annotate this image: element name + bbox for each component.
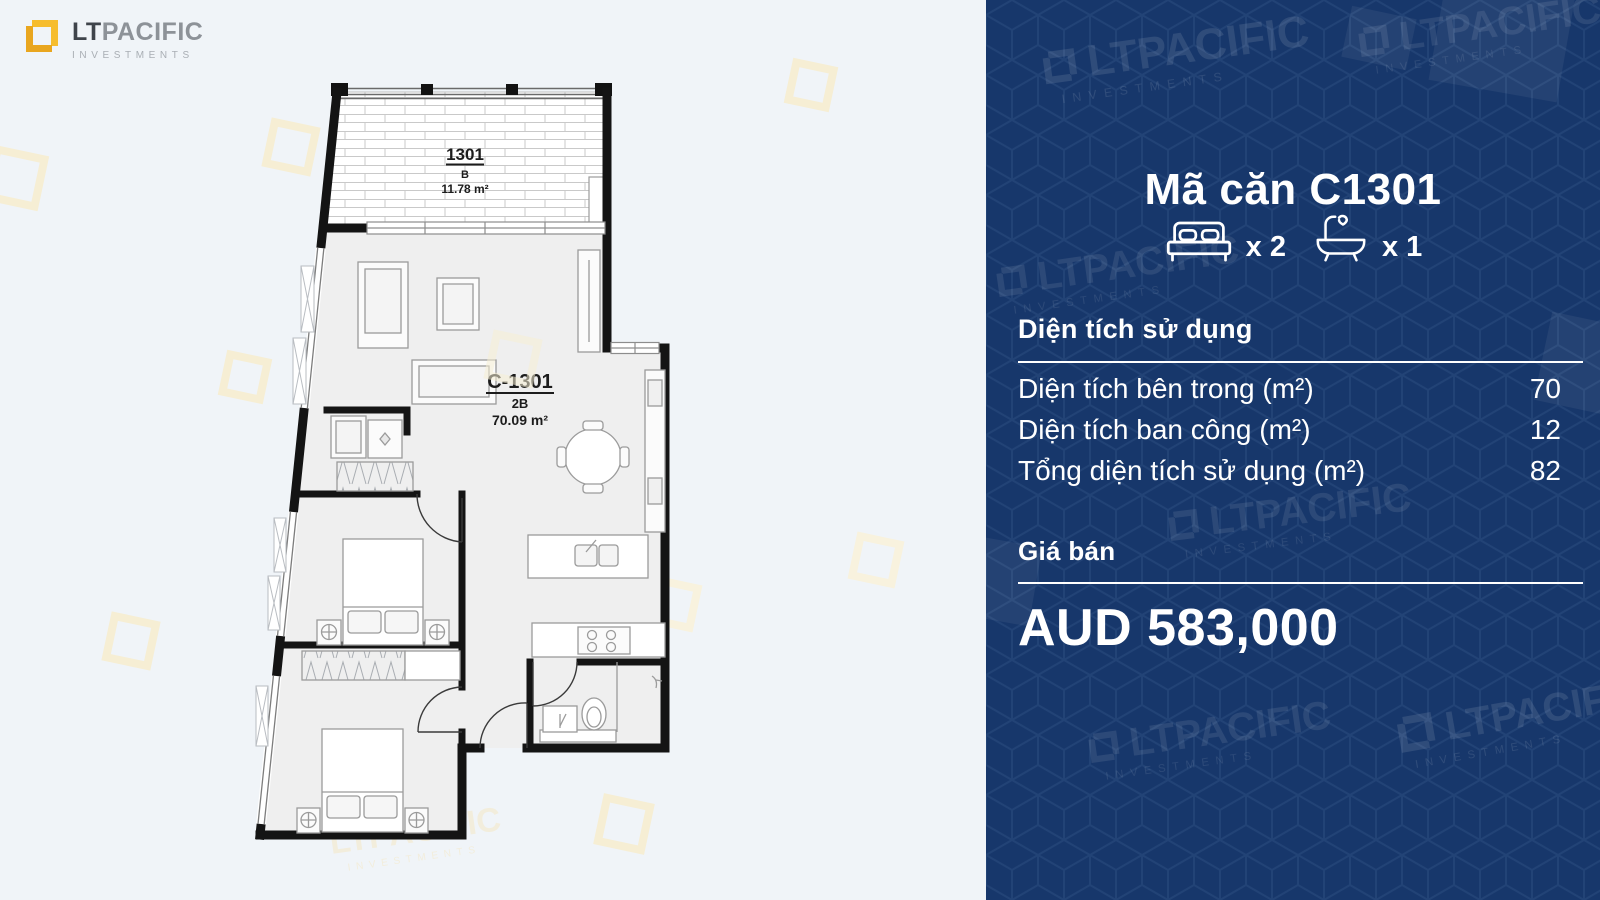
- bedrooms-count: x 2: [1246, 231, 1286, 266]
- price-section-rule: [1018, 582, 1583, 584]
- area-rows: Diện tích bên trong (m²) 70 Diện tích ba…: [1018, 373, 1583, 496]
- unit-area-label: 70.09 m²: [492, 412, 548, 428]
- unit-title: Mã căn C1301: [986, 165, 1600, 215]
- brand-name: LTPACIFIC: [72, 20, 203, 45]
- area-section: Diện tích sử dụng Diện tích bên trong (m…: [1018, 314, 1583, 496]
- price-section: Giá bán AUD 583,000: [1018, 536, 1583, 658]
- balcony-type-label: B: [461, 169, 469, 181]
- bg-square-motif: [101, 611, 160, 670]
- watermark-logo-icon: [1084, 726, 1125, 767]
- area-row-label: Diện tích ban công (m²): [1018, 414, 1311, 446]
- living-window: [367, 222, 605, 234]
- bathtub-icon: [1312, 210, 1370, 266]
- balcony-unit-label: 1301: [446, 145, 484, 164]
- bathrooms-count: x 1: [1382, 231, 1422, 266]
- area-row-value: 12: [1530, 414, 1583, 446]
- area-row-label: Tổng diện tích sử dụng (m²): [1018, 455, 1365, 487]
- watermark-logo-icon: [1037, 44, 1082, 89]
- kitchen-window: [611, 343, 659, 354]
- area-row-label: Diện tích bên trong (m²): [1018, 373, 1314, 405]
- page: LTPACIFIC INVESTMENTS LTPACIFIC INVESTME…: [0, 0, 1600, 900]
- bedrooms-item: x 2: [1164, 216, 1286, 266]
- bg-square-motif: [0, 145, 49, 211]
- floor-plan: 1301 B 11.78 m² C-1301 2B 70.09 m²: [255, 80, 695, 840]
- area-row: Diện tích ban công (m²) 12: [1018, 414, 1583, 455]
- area-row-value: 70: [1530, 373, 1583, 405]
- bg-square-motif: [483, 329, 542, 388]
- amenities-row: x 2 x 1: [986, 210, 1600, 266]
- price-value: AUD 583,000: [1018, 598, 1583, 658]
- brand-subtitle: INVESTMENTS: [72, 51, 203, 61]
- bathrooms-item: x 1: [1312, 210, 1422, 266]
- watermark-logo-icon: [1391, 707, 1442, 758]
- price-section-heading: Giá bán: [1018, 536, 1583, 567]
- watermark-logo-icon: [992, 260, 1033, 301]
- bg-square-motif: [848, 532, 905, 589]
- brand-logo-icon: [22, 16, 62, 56]
- balcony-area-label: 11.78 m²: [441, 182, 488, 196]
- watermark-logo-icon: [1354, 20, 1395, 61]
- brand-logo: LTPACIFIC INVESTMENTS: [22, 16, 203, 61]
- info-panel: LTPACIFIC INVESTMENTS LTPACIFIC INVESTME…: [986, 0, 1600, 900]
- unit-type-label: 2B: [512, 396, 529, 411]
- bg-square-motif: [784, 58, 839, 113]
- area-row: Diện tích bên trong (m²) 70: [1018, 373, 1583, 414]
- area-section-heading: Diện tích sử dụng: [1018, 314, 1583, 345]
- area-section-rule: [1018, 361, 1583, 363]
- area-row: Tổng diện tích sử dụng (m²) 82: [1018, 455, 1583, 496]
- bed-icon: [1164, 216, 1234, 266]
- area-row-value: 82: [1530, 455, 1583, 487]
